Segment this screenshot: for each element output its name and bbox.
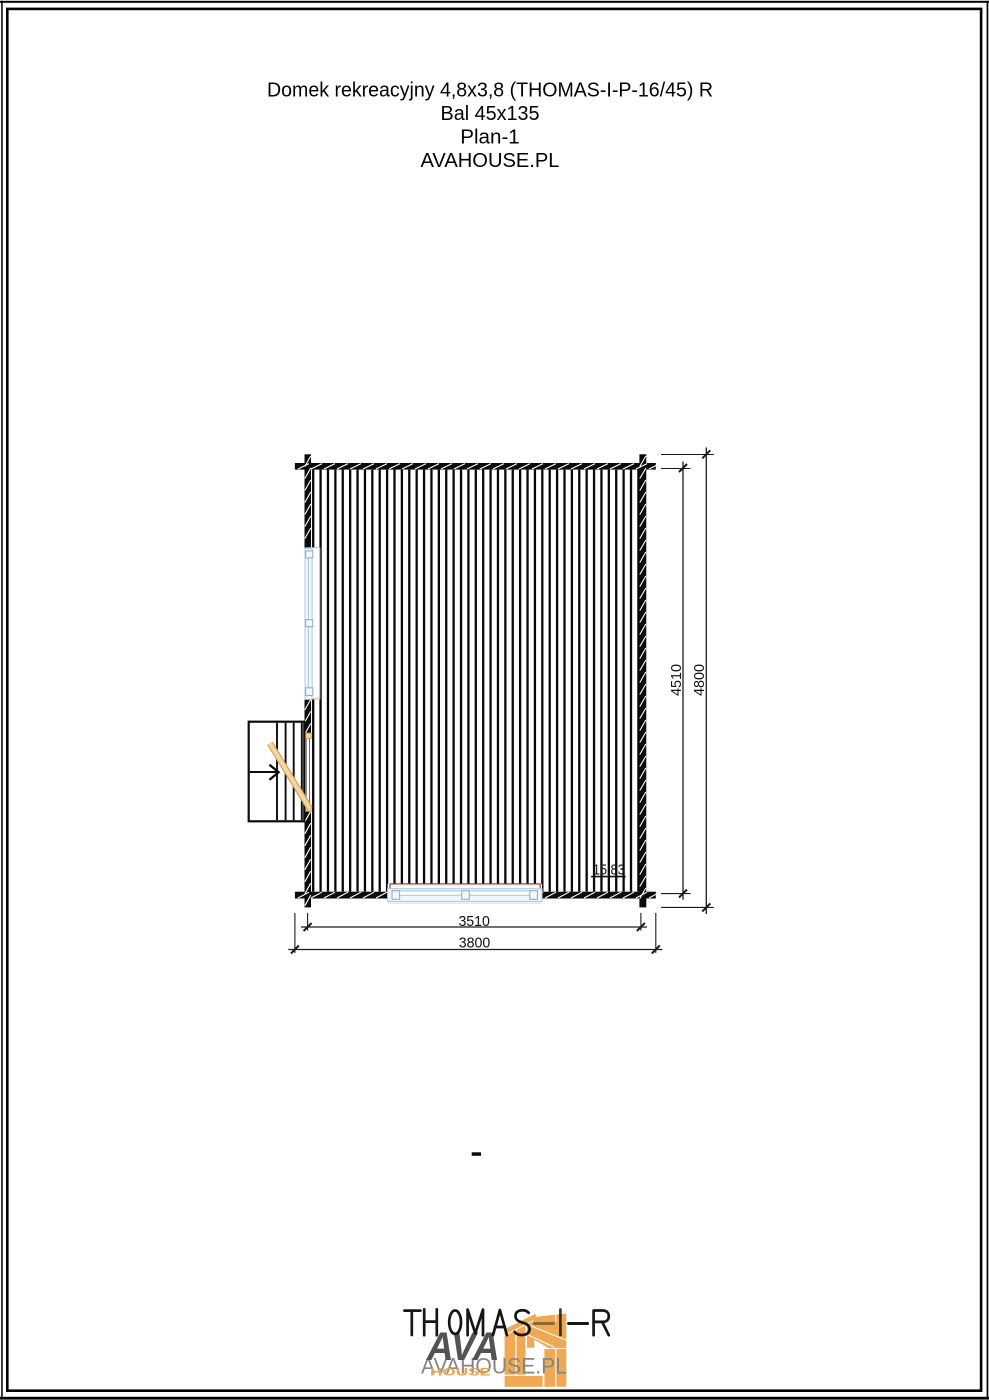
- svg-text:AVAHOUSE.PL: AVAHOUSE.PL: [421, 149, 560, 172]
- svg-text:3800: 3800: [459, 934, 491, 951]
- svg-text:4800: 4800: [691, 664, 708, 696]
- svg-text:4510: 4510: [668, 664, 685, 696]
- svg-text:Domek rekreacyjny 4,8x3,8 (THO: Domek rekreacyjny 4,8x3,8 (THOMAS-I-P-16…: [267, 78, 713, 101]
- svg-text:Plan-1: Plan-1: [460, 125, 520, 148]
- svg-text:Bal 45x135: Bal 45x135: [441, 102, 540, 125]
- svg-text:3510: 3510: [458, 913, 490, 930]
